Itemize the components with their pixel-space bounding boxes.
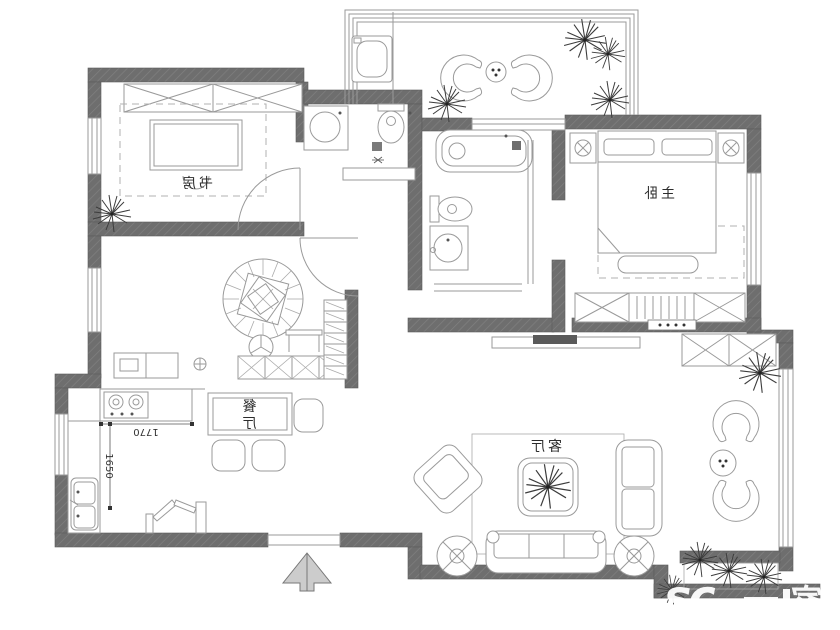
bath-basin: [430, 226, 468, 270]
bath-door-threshold: [434, 284, 522, 291]
bookshelf: [324, 300, 347, 379]
guest-toilet: [378, 104, 412, 143]
dim-1770-label: 1770: [133, 426, 158, 437]
master-wall-tv: [648, 320, 696, 330]
watermark-suffix: 家: [791, 582, 828, 620]
floorplan-page: 1770 1650 餐 厅: [0, 0, 840, 630]
dimension-1650: 1650: [103, 422, 114, 510]
window-left-kitchen: [55, 414, 68, 475]
lounge-corner: [710, 401, 759, 522]
dining-area: 餐 厅: [208, 393, 323, 471]
dim-1650-label: 1650: [103, 453, 114, 478]
dining-chair-1: [212, 440, 245, 471]
washing-machine: [352, 36, 392, 82]
entrance-threshold: [268, 535, 340, 545]
master-bedroom-label: 主卧: [641, 186, 675, 202]
study-wardrobe: [124, 84, 302, 112]
main-bathroom: [430, 130, 533, 291]
floor-symbol: [194, 358, 206, 370]
corridor-shelf: [343, 142, 415, 180]
dining-label-char2: 厅: [240, 416, 257, 432]
entrance: [268, 535, 340, 591]
plant: [591, 81, 629, 118]
window-left-study: [88, 118, 101, 174]
watermark: sc 家: [664, 570, 828, 624]
kitchen-folding-door: [146, 500, 206, 533]
side-table-right: [614, 536, 654, 576]
toilet: [430, 196, 472, 222]
bed-bench: [618, 256, 698, 273]
dimension-1770: 1770: [99, 422, 194, 437]
master-wardrobe: [575, 293, 745, 322]
window-left-middle: [88, 268, 101, 332]
side-table-left: [437, 536, 477, 576]
nightstand-right: [718, 133, 744, 163]
dining-label-char1: 餐: [240, 399, 257, 415]
master-bedroom: [570, 131, 745, 330]
guest-basin: [304, 106, 348, 150]
family-room: [101, 238, 358, 389]
armchair: [410, 441, 486, 517]
living-room-label: 客厅: [528, 438, 562, 455]
stool: [249, 335, 273, 359]
entrance-arrow: [283, 553, 331, 591]
loveseat: [616, 440, 662, 536]
plant: [564, 19, 606, 60]
dining-chair-2: [252, 440, 285, 471]
guest-bathroom: [304, 104, 415, 180]
nightstand-left: [570, 133, 596, 163]
balcony-door-threshold: [472, 119, 565, 130]
tv-console: [492, 335, 640, 348]
low-cabinet: [114, 353, 178, 378]
window-master-right: [747, 173, 761, 285]
window-living-right: [779, 369, 793, 547]
kitchen: 1770 1650: [68, 389, 206, 533]
sofa: [486, 531, 606, 573]
floorplan-canvas: 1770 1650 餐 厅: [0, 0, 840, 630]
watermark-prefix: sc: [664, 570, 715, 624]
right-cabinet: [682, 334, 776, 366]
side-bench: [286, 330, 322, 352]
kitchen-sink: [70, 478, 98, 530]
study-label: 书房: [179, 176, 213, 192]
study-desk: [150, 120, 242, 170]
study-room: [120, 84, 302, 230]
round-rug: [223, 259, 303, 339]
bathtub: [436, 130, 532, 172]
dining-chair-right: [294, 399, 323, 432]
family-door: [300, 238, 358, 296]
gas-stove: [104, 392, 148, 418]
study-door: [238, 168, 300, 230]
